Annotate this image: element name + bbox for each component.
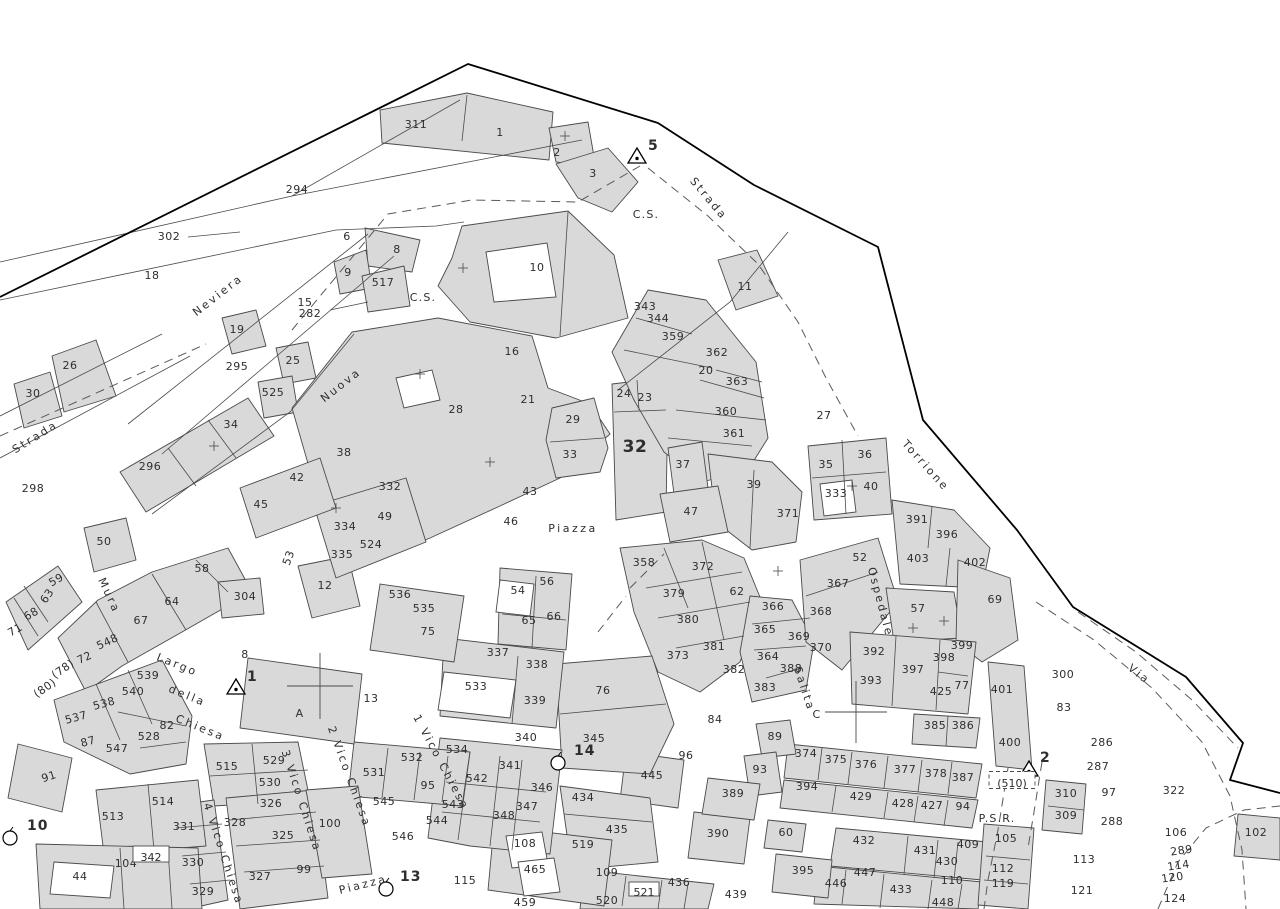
parcel-label-429: 429 xyxy=(850,790,873,803)
street-label-piazza: Piazza xyxy=(548,522,597,535)
parcel-label-286: 286 xyxy=(1091,736,1114,749)
parcel-label-100: 100 xyxy=(319,817,342,830)
parcel-label-360: 360 xyxy=(715,405,738,418)
parcel-label-13: 13 xyxy=(364,692,379,705)
parcel-label-64: 64 xyxy=(165,595,180,608)
parcel-label-544: 544 xyxy=(426,814,449,827)
dashed-road-line xyxy=(598,596,626,632)
parcel-label-39: 39 xyxy=(747,478,762,491)
parcel-label-29: 29 xyxy=(566,413,581,426)
parcel-label-57: 57 xyxy=(911,602,926,615)
parcel-label-331: 331 xyxy=(173,820,196,833)
parcel-label-348: 348 xyxy=(493,809,516,822)
parcel-label-121: 121 xyxy=(1071,884,1094,897)
area-label-cs: C.S. xyxy=(633,208,659,221)
parcel-label-528: 528 xyxy=(138,730,161,743)
parcel-label-379: 379 xyxy=(663,587,686,600)
parcel-label-433: 433 xyxy=(890,883,913,896)
survey-point-label-14: 14 xyxy=(574,743,595,759)
parcel-label-519: 519 xyxy=(572,838,595,851)
parcel-label-38: 38 xyxy=(337,446,352,459)
parcel-label-3: 3 xyxy=(589,167,597,180)
survey-triangle-icon xyxy=(227,679,245,694)
parcel-label-45: 45 xyxy=(254,498,269,511)
parcel-label-439: 439 xyxy=(725,888,748,901)
parcel-label-32: 32 xyxy=(623,437,648,457)
parcel-label-94: 94 xyxy=(956,800,971,813)
parcel-label-62: 62 xyxy=(730,585,745,598)
parcel-label-16: 16 xyxy=(505,345,520,358)
boxed-label-342: 342 xyxy=(141,851,162,864)
parcel-label-304: 304 xyxy=(234,590,257,603)
parcel-label-448: 448 xyxy=(932,896,955,909)
parcel-label-58: 58 xyxy=(195,562,210,575)
parcel-label-113: 113 xyxy=(1073,853,1096,866)
parcel-label-294: 294 xyxy=(286,183,309,196)
parcel-label-367: 367 xyxy=(827,577,850,590)
parcel-label-76: 76 xyxy=(596,684,611,697)
cadastral-map: 3111232943021868951715282101119295255252… xyxy=(0,0,1280,909)
parcel-label-378: 378 xyxy=(925,767,948,780)
parcel-label-339: 339 xyxy=(524,694,547,707)
parcel-label-394: 394 xyxy=(796,780,819,793)
parcel-label-6: 6 xyxy=(343,230,351,243)
parcel-label-328: 328 xyxy=(224,816,247,829)
parcel-label-392: 392 xyxy=(863,645,886,658)
parcel-label-383: 383 xyxy=(754,681,777,694)
parcel-label-340: 340 xyxy=(515,731,538,744)
parcel-label-517: 517 xyxy=(372,276,395,289)
parcel-label-8: 8 xyxy=(241,648,249,661)
parcel-label-380: 380 xyxy=(677,613,700,626)
street-label-neviera: Neviera xyxy=(190,272,245,319)
parcel-label-82: 82 xyxy=(160,719,175,732)
parcel-label-60: 60 xyxy=(779,826,794,839)
area-label-cs: C.S. xyxy=(410,291,436,304)
parcel-label-67: 67 xyxy=(134,614,149,627)
parcel-label-330: 330 xyxy=(182,856,205,869)
parcel-label-50: 50 xyxy=(97,535,112,548)
parcel-label-288: 288 xyxy=(1101,815,1124,828)
parcel-label-387: 387 xyxy=(952,771,975,784)
dashed-road-line xyxy=(1078,612,1238,748)
parcel-label-465: 465 xyxy=(524,863,547,876)
area-label-a: A xyxy=(296,707,305,720)
parcel-label-18: 18 xyxy=(145,269,160,282)
parcel-label-430: 430 xyxy=(936,855,959,868)
parcel-label-359: 359 xyxy=(662,330,685,343)
survey-triangle-dot xyxy=(635,157,638,160)
parcel-label-35: 35 xyxy=(819,458,834,471)
parcel-label-302: 302 xyxy=(158,230,181,243)
parcel-label-1: 1 xyxy=(496,126,504,139)
parcel-polygon xyxy=(14,372,62,428)
parcel-label-400: 400 xyxy=(999,736,1022,749)
parcel-label-539: 539 xyxy=(137,669,160,682)
parcel-label-40: 40 xyxy=(864,480,879,493)
parcel-label-298: 298 xyxy=(22,482,45,495)
parcel-label-402: 402 xyxy=(964,556,987,569)
parcel-label-109: 109 xyxy=(596,866,619,879)
parcel-label-36: 36 xyxy=(858,448,873,461)
survey-circle-icon xyxy=(551,756,565,770)
parcel-label-26: 26 xyxy=(63,359,78,372)
parcel-label-21: 21 xyxy=(521,393,536,406)
parcel-label-409: 409 xyxy=(957,838,980,851)
survey-circle-icon xyxy=(3,831,17,845)
parcel-label-545: 545 xyxy=(373,795,396,808)
survey-point-label-10: 10 xyxy=(27,818,48,834)
parcel-label-370: 370 xyxy=(810,641,833,654)
parcel-label-24: 24 xyxy=(617,387,632,400)
parcel-label-369: 369 xyxy=(788,630,811,643)
parcel-label-332: 332 xyxy=(379,480,402,493)
parcel-label-102: 102 xyxy=(1245,826,1268,839)
parcel-polygon xyxy=(886,588,962,642)
parcel-label-542: 542 xyxy=(466,772,489,785)
parcel-label-396: 396 xyxy=(936,528,959,541)
parcel-label-344: 344 xyxy=(647,312,670,325)
parcel-label-347: 347 xyxy=(516,800,539,813)
parcel-label-386: 386 xyxy=(952,719,975,732)
parcel-label-338: 338 xyxy=(526,658,549,671)
parcel-label-65: 65 xyxy=(522,614,537,627)
parcel-label-23: 23 xyxy=(638,391,653,404)
parcel-label-524: 524 xyxy=(360,538,383,551)
parcel-label-375: 375 xyxy=(825,753,848,766)
survey-triangle-icon xyxy=(628,148,646,163)
parcel-label-371: 371 xyxy=(777,507,800,520)
parcel-label-66: 66 xyxy=(547,610,562,623)
parcel-label-532: 532 xyxy=(401,751,424,764)
parcel-polygon xyxy=(370,584,464,662)
parcel-label-376: 376 xyxy=(855,758,878,771)
parcel-label-28: 28 xyxy=(449,403,464,416)
parcel-label-329: 329 xyxy=(192,885,215,898)
dashed-road-line xyxy=(1036,602,1246,909)
parcel-label-287: 287 xyxy=(1087,760,1110,773)
parcel-label-30: 30 xyxy=(26,387,41,400)
parcel-label-513: 513 xyxy=(102,810,125,823)
parcel-label-99: 99 xyxy=(297,863,312,876)
parcel-polygon xyxy=(8,744,72,812)
parcel-label-112: 112 xyxy=(992,862,1015,875)
parcel-label-19: 19 xyxy=(230,323,245,336)
parcel-label-341: 341 xyxy=(499,759,522,772)
courtyard-polygon xyxy=(438,672,516,718)
parcel-label-547: 547 xyxy=(106,742,129,755)
parcel-label-434: 434 xyxy=(572,791,595,804)
parcel-label-432: 432 xyxy=(853,834,876,847)
parcel-label-322: 322 xyxy=(1163,784,1186,797)
parcel-label-390: 390 xyxy=(707,827,730,840)
parcel-label-540: 540 xyxy=(122,685,145,698)
parcel-label-89: 89 xyxy=(768,730,783,743)
parcel-label-12: 12 xyxy=(318,579,333,592)
parcel-label-398: 398 xyxy=(933,651,956,664)
parcel-label-115: 115 xyxy=(454,874,477,887)
survey-point-label-2: 2 xyxy=(1040,750,1051,766)
parcel-label-447: 447 xyxy=(854,866,877,879)
parcel-label-46: 46 xyxy=(504,515,519,528)
area-label-psr: P.S.R. xyxy=(979,812,1016,825)
parcel-label-110: 110 xyxy=(941,874,964,887)
parcel-label-337: 337 xyxy=(487,646,510,659)
parcel-label-124: 124 xyxy=(1164,892,1187,905)
parcel-label-96: 96 xyxy=(679,749,694,762)
parcel-label-534: 534 xyxy=(446,743,469,756)
parcel-label-335: 335 xyxy=(331,548,354,561)
parcel-label-535: 535 xyxy=(413,602,436,615)
parcel-label-520: 520 xyxy=(596,894,619,907)
parcel-label-397: 397 xyxy=(902,663,925,676)
parcel-label-346: 346 xyxy=(531,781,554,794)
parcel-label-108: 108 xyxy=(514,837,537,850)
parcel-label-83: 83 xyxy=(1057,701,1072,714)
cadastral-map-canvas: 3111232943021868951715282101119295255252… xyxy=(0,0,1280,909)
survey-point-label-13: 13 xyxy=(400,869,421,885)
parcel-label-44: 44 xyxy=(73,870,88,883)
parcel-label-300: 300 xyxy=(1052,668,1075,681)
parcel-label-69: 69 xyxy=(988,593,1003,606)
parcel-label-382: 382 xyxy=(723,663,746,676)
parcel-label-425: 425 xyxy=(930,685,953,698)
parcel-label-333: 333 xyxy=(825,487,848,500)
parcel-polygon xyxy=(708,454,802,550)
parcel-label-20: 20 xyxy=(699,364,714,377)
area-label-c: C xyxy=(813,708,822,721)
boxed-label-510: (510) xyxy=(997,777,1027,790)
parcel-label-11: 11 xyxy=(738,280,753,293)
parcel-label-363: 363 xyxy=(726,375,749,388)
parcel-label-515: 515 xyxy=(216,760,239,773)
parcel-polygon xyxy=(240,658,362,744)
parcel-label-435: 435 xyxy=(606,823,629,836)
parcel-label-42: 42 xyxy=(290,471,305,484)
parcel-label-296: 296 xyxy=(139,460,162,473)
parcel-label-27: 27 xyxy=(817,409,832,422)
parcel-label-97: 97 xyxy=(1102,786,1117,799)
parcel-label-34: 34 xyxy=(224,418,239,431)
courtyard-polygon xyxy=(486,243,556,302)
parcel-label-77: 77 xyxy=(955,679,970,692)
parcel-label-377: 377 xyxy=(894,763,917,776)
parcel-label-525: 525 xyxy=(262,386,285,399)
parcel-label-366: 366 xyxy=(762,600,785,613)
parcel-label-393: 393 xyxy=(860,674,883,687)
parcel-label-9: 9 xyxy=(344,266,352,279)
parcel-label-2: 2 xyxy=(553,146,561,159)
parcel-label-459: 459 xyxy=(514,896,537,909)
parcel-label-84: 84 xyxy=(708,713,723,726)
survey-point-label-5: 5 xyxy=(648,138,659,154)
parcel-label-403: 403 xyxy=(907,552,930,565)
parcel-label-428: 428 xyxy=(892,797,915,810)
parcel-label-373: 373 xyxy=(667,649,690,662)
parcel-label-381: 381 xyxy=(703,640,726,653)
parcel-label-395: 395 xyxy=(792,864,815,877)
parcel-label-47: 47 xyxy=(684,505,699,518)
parcel-polygon xyxy=(988,662,1032,770)
parcel-label-446: 446 xyxy=(825,877,848,890)
parcel-label-56: 56 xyxy=(540,575,555,588)
parcel-label-358: 358 xyxy=(633,556,656,569)
parcel-label-295: 295 xyxy=(226,360,249,373)
parcel-label-365: 365 xyxy=(754,623,777,636)
street-label-strada: Strada xyxy=(687,175,730,223)
parcel-label-282: 282 xyxy=(299,307,322,320)
parcel-label-364: 364 xyxy=(757,650,780,663)
parcel-label-119: 119 xyxy=(992,877,1015,890)
parcel-label-95: 95 xyxy=(421,779,436,792)
parcel-label-37: 37 xyxy=(676,458,691,471)
parcel-label-427: 427 xyxy=(921,799,944,812)
parcel-label-391: 391 xyxy=(906,513,929,526)
boxed-label-521: 521 xyxy=(634,886,655,899)
parcel-label-120: 120 xyxy=(1160,870,1184,886)
parcel-label-93: 93 xyxy=(753,763,768,776)
parcel-label-362: 362 xyxy=(706,346,729,359)
parcel-label-533: 533 xyxy=(465,680,488,693)
parcel-label-310: 310 xyxy=(1055,787,1078,800)
parcel-label-334: 334 xyxy=(334,520,357,533)
survey-point-label-1: 1 xyxy=(247,669,258,685)
parcel-label-431: 431 xyxy=(914,844,937,857)
parcel-label-445: 445 xyxy=(641,769,664,782)
parcel-label-401: 401 xyxy=(991,683,1014,696)
parcel-label-49: 49 xyxy=(378,510,393,523)
parcel-label-536: 536 xyxy=(389,588,412,601)
parcel-label-8: 8 xyxy=(393,243,401,256)
parcel-label-389: 389 xyxy=(722,787,745,800)
parcel-label-436: 436 xyxy=(668,876,691,889)
survey-triangle-dot xyxy=(234,688,237,691)
parcel-label-546: 546 xyxy=(392,830,415,843)
parcel-label-385: 385 xyxy=(924,719,947,732)
parcel-label-368: 368 xyxy=(810,605,833,618)
parcel-label-326: 326 xyxy=(260,797,283,810)
parcel-label-289: 289 xyxy=(1169,843,1193,859)
parcel-label-531: 531 xyxy=(363,766,386,779)
parcel-label-33: 33 xyxy=(563,448,578,461)
survey-circle-tick xyxy=(10,827,13,831)
parcel-label-54: 54 xyxy=(511,584,526,597)
parcel-label-530: 530 xyxy=(259,776,282,789)
parcel-label-10: 10 xyxy=(530,261,545,274)
parcel-label-53: 53 xyxy=(280,549,297,568)
parcel-label-75: 75 xyxy=(421,625,436,638)
parcel-label-309: 309 xyxy=(1055,809,1078,822)
parcel-label-43: 43 xyxy=(523,485,538,498)
parcel-label-52: 52 xyxy=(853,551,868,564)
parcel-label-106: 106 xyxy=(1165,826,1188,839)
parcel-label-25: 25 xyxy=(286,354,301,367)
parcel-label-372: 372 xyxy=(692,560,715,573)
street-label-via: Via xyxy=(1125,662,1152,687)
parcel-label-105: 105 xyxy=(995,832,1018,845)
parcel-label-327: 327 xyxy=(249,870,272,883)
parcel-label-361: 361 xyxy=(723,427,746,440)
parcel-label-311: 311 xyxy=(405,118,428,131)
parcel-label-374: 374 xyxy=(795,747,818,760)
parcel-label-325: 325 xyxy=(272,829,295,842)
street-edge-line xyxy=(188,232,240,237)
parcel-label-514: 514 xyxy=(152,795,175,808)
